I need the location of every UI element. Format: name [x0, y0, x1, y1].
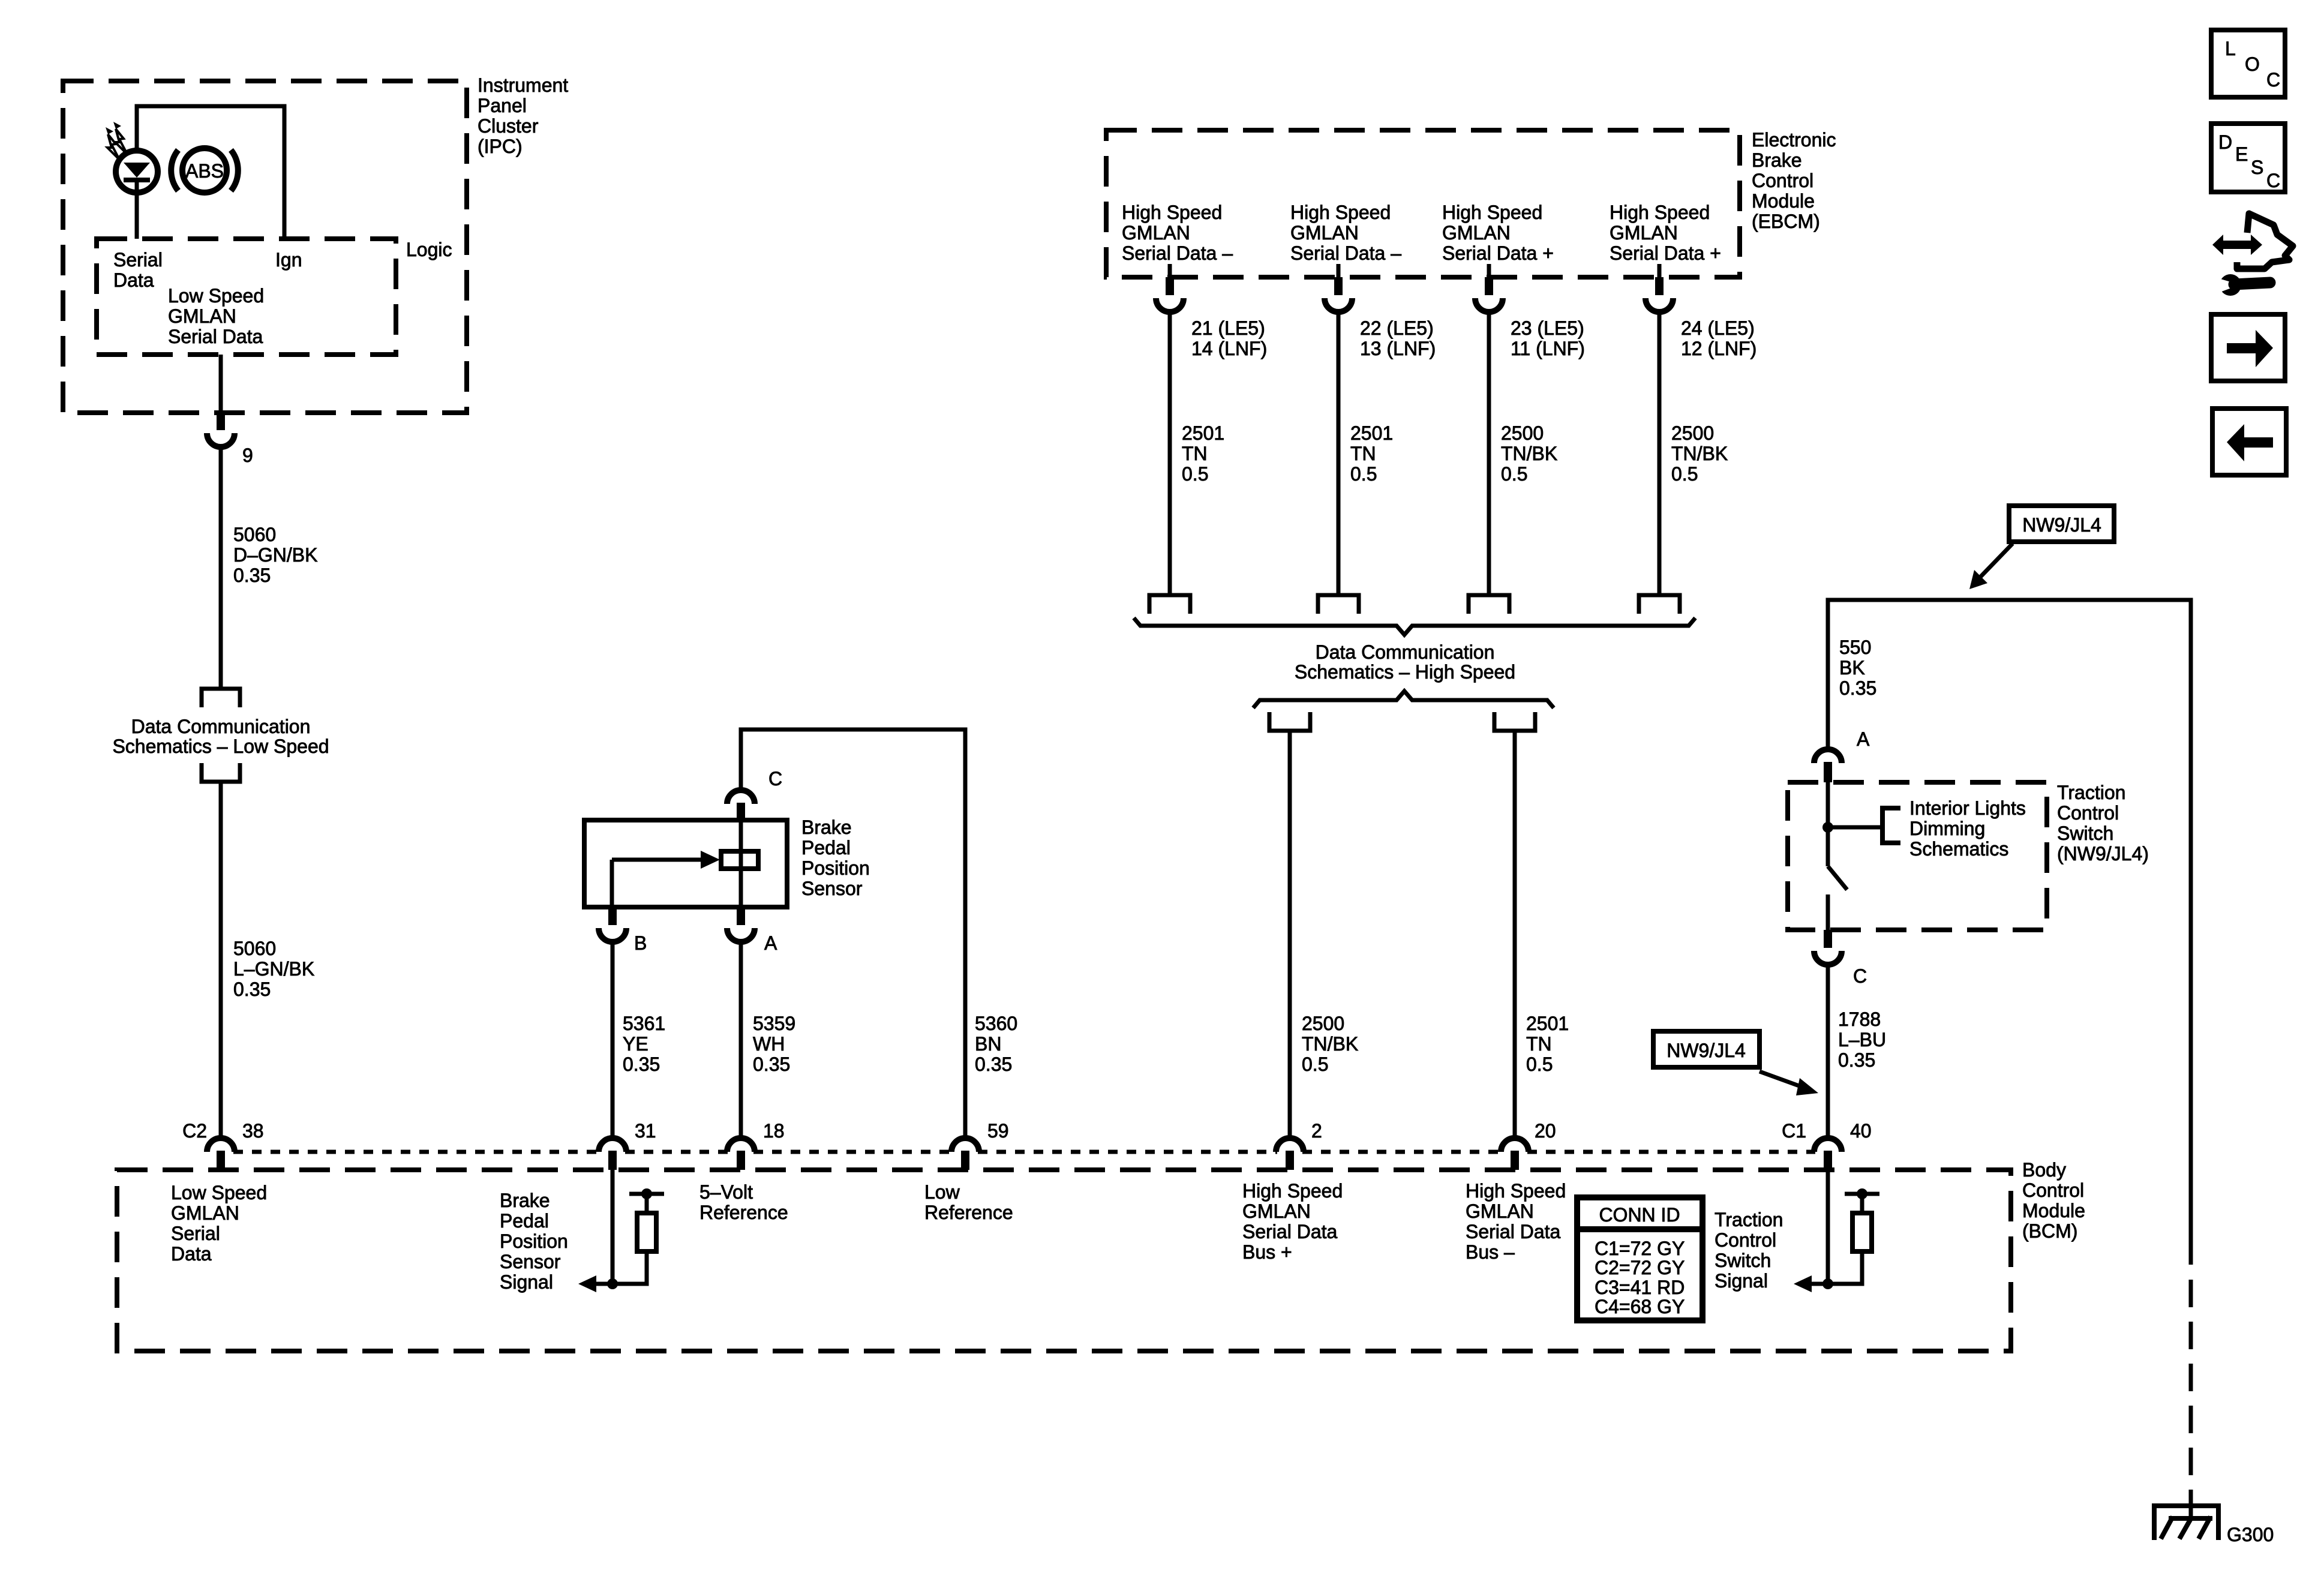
svg-text:CONN ID: CONN ID [1599, 1204, 1680, 1226]
svg-text:0.35: 0.35 [975, 1053, 1012, 1075]
svg-text:Traction: Traction [1715, 1209, 1783, 1230]
svg-text:0.35: 0.35 [233, 978, 271, 1000]
svg-text:Serial Data +: Serial Data + [1610, 242, 1721, 264]
svg-text:Signal: Signal [500, 1271, 553, 1293]
svg-text:2500: 2500 [1671, 422, 1714, 444]
svg-text:Serial: Serial [113, 249, 163, 271]
svg-text:NW9/JL4: NW9/JL4 [1667, 1040, 1746, 1061]
svg-text:Reference: Reference [924, 1202, 1013, 1223]
svg-text:Data Communication: Data Communication [1316, 641, 1495, 663]
svg-text:C: C [1853, 965, 1867, 987]
svg-text:C1: C1 [1782, 1120, 1806, 1142]
svg-text:Serial Data –: Serial Data – [1122, 242, 1233, 264]
svg-text:40: 40 [1850, 1120, 1872, 1142]
svg-text:Position: Position [500, 1230, 568, 1252]
svg-text:TN: TN [1182, 443, 1208, 464]
svg-text:Pedal: Pedal [801, 837, 851, 858]
svg-text:14 (LNF): 14 (LNF) [1191, 338, 1267, 359]
svg-text:13 (LNF): 13 (LNF) [1360, 338, 1436, 359]
svg-text:5060: 5060 [233, 524, 276, 545]
svg-text:(BCM): (BCM) [2022, 1220, 2077, 1242]
svg-text:59: 59 [987, 1120, 1009, 1142]
svg-text:L–GN/BK: L–GN/BK [233, 958, 314, 980]
svg-text:Instrument: Instrument [478, 74, 568, 96]
svg-text:High Speed: High Speed [1122, 202, 1222, 223]
svg-text:GMLAN: GMLAN [1466, 1200, 1534, 1222]
svg-text:5360: 5360 [975, 1013, 1017, 1034]
svg-text:(NW9/JL4): (NW9/JL4) [2057, 843, 2149, 864]
svg-text:Low Speed: Low Speed [168, 285, 264, 307]
svg-text:C2=72 GY: C2=72 GY [1595, 1257, 1685, 1278]
svg-text:9: 9 [242, 445, 253, 466]
svg-text:Sensor: Sensor [500, 1251, 561, 1272]
svg-text:Interior Lights: Interior Lights [1909, 797, 2026, 819]
svg-text:High Speed: High Speed [1466, 1180, 1566, 1202]
svg-text:2: 2 [1311, 1120, 1322, 1142]
svg-text:5060: 5060 [233, 938, 276, 959]
svg-text:S: S [2251, 157, 2263, 178]
svg-text:550: 550 [1839, 637, 1871, 658]
svg-text:GMLAN: GMLAN [1290, 222, 1359, 244]
svg-text:Brake: Brake [1752, 149, 1802, 171]
svg-text:5359: 5359 [753, 1013, 795, 1034]
svg-text:2500: 2500 [1302, 1013, 1344, 1034]
svg-text:YE: YE [623, 1033, 648, 1055]
svg-text:TN/BK: TN/BK [1302, 1033, 1358, 1055]
svg-text:A: A [1857, 728, 1870, 750]
svg-text:C2: C2 [182, 1120, 207, 1142]
svg-text:Schematics – Low Speed: Schematics – Low Speed [112, 736, 329, 757]
svg-text:Reference: Reference [699, 1202, 788, 1223]
svg-text:0.35: 0.35 [753, 1053, 790, 1075]
svg-text:Brake: Brake [801, 816, 852, 838]
svg-text:2501: 2501 [1526, 1013, 1569, 1034]
svg-text:Low: Low [924, 1181, 960, 1203]
svg-text:High Speed: High Speed [1442, 202, 1542, 223]
svg-text:Serial Data +: Serial Data + [1442, 242, 1554, 264]
svg-text:18: 18 [763, 1120, 785, 1142]
svg-text:Brake: Brake [500, 1190, 550, 1211]
svg-text:C4=68 GY: C4=68 GY [1595, 1296, 1685, 1317]
svg-text:0.35: 0.35 [623, 1053, 660, 1075]
svg-text:12 (LNF): 12 (LNF) [1681, 338, 1756, 359]
svg-text:Control: Control [1715, 1229, 1776, 1251]
svg-text:E: E [2235, 143, 2248, 165]
svg-text:C: C [768, 768, 782, 789]
svg-text:GMLAN: GMLAN [1610, 222, 1678, 244]
svg-text:Switch: Switch [2057, 822, 2113, 844]
svg-text:High Speed: High Speed [1242, 1180, 1343, 1202]
svg-text:WH: WH [753, 1033, 785, 1055]
svg-text:0.35: 0.35 [233, 565, 271, 586]
svg-text:Serial: Serial [171, 1223, 220, 1244]
svg-text:Module: Module [2022, 1200, 2085, 1221]
svg-text:NW9/JL4: NW9/JL4 [2022, 514, 2101, 536]
svg-text:TN/BK: TN/BK [1671, 443, 1728, 464]
svg-text:Cluster: Cluster [478, 115, 539, 137]
svg-text:ABS: ABS [185, 160, 224, 182]
svg-text:L: L [2225, 38, 2236, 59]
svg-text:A: A [764, 932, 777, 954]
svg-text:TN/BK: TN/BK [1501, 443, 1557, 464]
svg-text:Schematics – High Speed: Schematics – High Speed [1295, 661, 1515, 683]
svg-text:Serial Data –: Serial Data – [1290, 242, 1401, 264]
svg-text:1788: 1788 [1838, 1008, 1881, 1030]
svg-text:High Speed: High Speed [1610, 202, 1710, 223]
svg-text:Body: Body [2022, 1159, 2066, 1181]
svg-text:38: 38 [242, 1120, 264, 1142]
svg-text:20: 20 [1535, 1120, 1556, 1142]
svg-text:Control: Control [2057, 802, 2119, 824]
svg-text:Position: Position [801, 857, 870, 879]
svg-text:Sensor: Sensor [801, 878, 863, 899]
svg-text:(EBCM): (EBCM) [1752, 211, 1820, 232]
svg-text:B: B [634, 932, 647, 954]
svg-text:5361: 5361 [623, 1013, 665, 1034]
svg-text:0.5: 0.5 [1302, 1053, 1328, 1075]
svg-text:0.35: 0.35 [1838, 1049, 1875, 1071]
svg-text:TN: TN [1526, 1033, 1552, 1055]
svg-text:Serial Data: Serial Data [1466, 1221, 1561, 1242]
svg-text:Logic: Logic [406, 239, 452, 260]
svg-text:C3=41 RD: C3=41 RD [1595, 1277, 1685, 1298]
svg-text:Module: Module [1752, 190, 1815, 212]
svg-text:31: 31 [635, 1120, 656, 1142]
svg-text:D–GN/BK: D–GN/BK [233, 544, 317, 566]
svg-text:5–Volt: 5–Volt [699, 1181, 753, 1203]
svg-text:Signal: Signal [1715, 1270, 1768, 1292]
svg-text:Low Speed: Low Speed [171, 1182, 267, 1203]
svg-text:Data: Data [171, 1243, 212, 1265]
svg-text:Bus –: Bus – [1466, 1241, 1515, 1263]
svg-text:C: C [2266, 170, 2280, 191]
svg-text:2500: 2500 [1501, 422, 1544, 444]
svg-text:GMLAN: GMLAN [168, 305, 236, 327]
svg-text:0.5: 0.5 [1501, 463, 1527, 485]
svg-text:2501: 2501 [1350, 422, 1393, 444]
svg-text:Schematics: Schematics [1909, 838, 2008, 860]
svg-text:TN: TN [1350, 443, 1376, 464]
svg-text:Control: Control [1752, 170, 1813, 191]
svg-text:Traction: Traction [2057, 782, 2125, 803]
svg-text:Pedal: Pedal [500, 1210, 549, 1232]
svg-text:24 (LE5): 24 (LE5) [1681, 317, 1755, 339]
svg-text:Bus +: Bus + [1242, 1241, 1292, 1263]
svg-text:High Speed: High Speed [1290, 202, 1391, 223]
svg-text:21 (LE5): 21 (LE5) [1191, 317, 1265, 339]
svg-text:GMLAN: GMLAN [1442, 222, 1511, 244]
svg-text:Serial Data: Serial Data [1242, 1221, 1338, 1242]
svg-text:0.5: 0.5 [1671, 463, 1698, 485]
svg-text:BN: BN [975, 1033, 1001, 1055]
svg-text:Data: Data [113, 269, 154, 291]
svg-text:O: O [2245, 53, 2260, 75]
svg-text:Control: Control [2022, 1179, 2084, 1201]
svg-text:D: D [2218, 131, 2232, 153]
svg-text:23 (LE5): 23 (LE5) [1511, 317, 1584, 339]
svg-text:G300: G300 [2227, 1524, 2274, 1545]
svg-text:Ign: Ign [275, 249, 302, 271]
svg-text:GMLAN: GMLAN [1242, 1200, 1311, 1222]
svg-text:0.5: 0.5 [1350, 463, 1377, 485]
svg-text:GMLAN: GMLAN [171, 1202, 239, 1224]
svg-text:GMLAN: GMLAN [1122, 222, 1190, 244]
svg-text:11 (LNF): 11 (LNF) [1511, 338, 1585, 359]
svg-text:(IPC): (IPC) [478, 136, 523, 157]
svg-text:0.35: 0.35 [1839, 677, 1876, 699]
svg-text:0.5: 0.5 [1526, 1053, 1553, 1075]
svg-text:Electronic: Electronic [1752, 129, 1836, 151]
svg-text:BK: BK [1839, 657, 1865, 679]
svg-text:Switch: Switch [1715, 1250, 1771, 1271]
svg-text:Dimming: Dimming [1909, 818, 1985, 839]
svg-text:C: C [2266, 69, 2280, 91]
svg-text:22 (LE5): 22 (LE5) [1360, 317, 1434, 339]
svg-text:Data Communication: Data Communication [131, 716, 311, 737]
svg-text:Panel: Panel [478, 95, 527, 116]
svg-text:Serial Data: Serial Data [168, 326, 263, 347]
svg-text:L–BU: L–BU [1838, 1029, 1886, 1050]
svg-text:2501: 2501 [1182, 422, 1224, 444]
svg-text:C1=72 GY: C1=72 GY [1595, 1238, 1685, 1259]
svg-text:0.5: 0.5 [1182, 463, 1208, 485]
